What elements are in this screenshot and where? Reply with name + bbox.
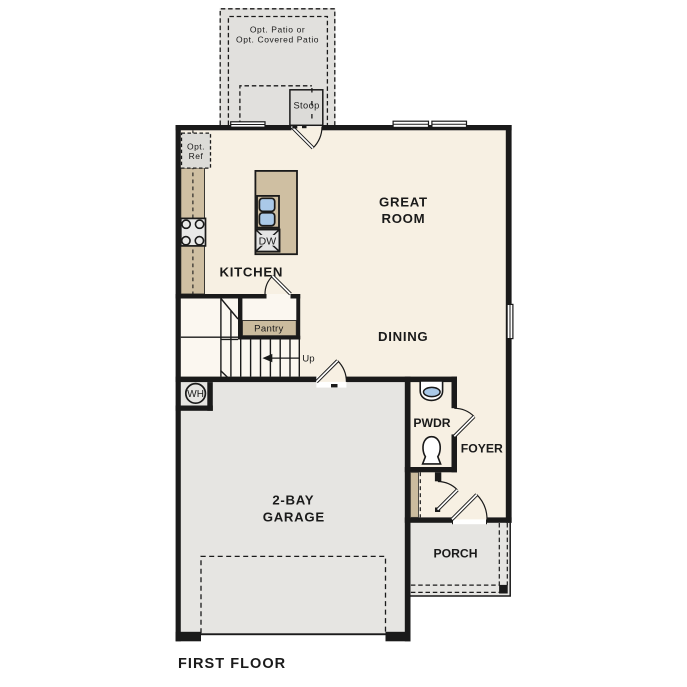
svg-text:PORCH: PORCH: [433, 547, 477, 561]
svg-text:DINING: DINING: [378, 329, 428, 344]
svg-text:WH: WH: [187, 389, 204, 400]
svg-text:Opt. Patio or: Opt. Patio or: [250, 25, 306, 35]
svg-text:ROOM: ROOM: [381, 211, 425, 226]
svg-text:FIRST FLOOR: FIRST FLOOR: [178, 656, 286, 672]
svg-text:FOYER: FOYER: [461, 441, 503, 455]
svg-text:Opt.: Opt.: [187, 141, 205, 151]
svg-text:PWDR: PWDR: [413, 416, 450, 430]
svg-text:Stoop: Stoop: [293, 101, 319, 111]
svg-text:2-BAY: 2-BAY: [272, 492, 314, 507]
svg-text:GREAT: GREAT: [379, 194, 428, 209]
svg-text:Up: Up: [302, 354, 314, 365]
svg-text:DW: DW: [259, 235, 277, 247]
svg-text:Ref: Ref: [189, 151, 204, 161]
svg-text:Opt. Covered Patio: Opt. Covered Patio: [236, 34, 319, 44]
svg-text:GARAGE: GARAGE: [263, 509, 325, 524]
svg-text:Pantry: Pantry: [254, 323, 284, 334]
